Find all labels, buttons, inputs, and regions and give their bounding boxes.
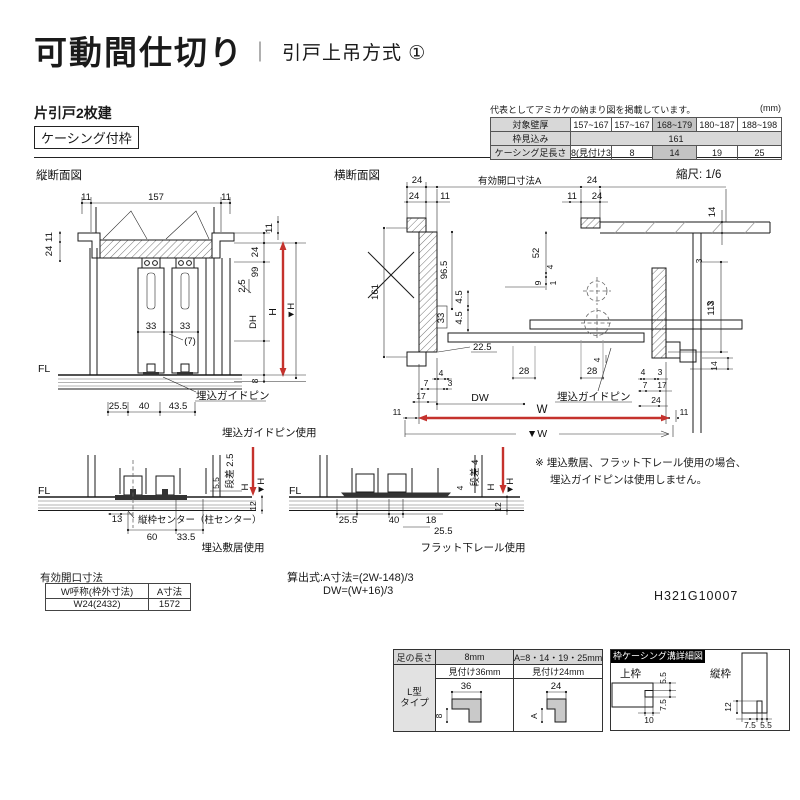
opening-dimension-table: W呼称(枠外寸法) A寸法 W24(2432) 1572 xyxy=(45,583,191,611)
dim-label: 4 xyxy=(439,368,444,378)
dim-label: 33 xyxy=(146,321,157,332)
row-header: 対象壁厚 xyxy=(491,118,571,132)
casing-leg-table: 足の長さ 8mm A=8・14・19・25mm L型タイプ 見付け36mm 見付… xyxy=(393,649,603,732)
table-row: L型タイプ 見付け36mm 見付け24mm xyxy=(394,665,603,679)
dim-label: 24 xyxy=(587,175,598,186)
dim-label: 3 xyxy=(694,258,704,263)
dim-label: 段差 4 xyxy=(469,460,481,487)
note-line: 埋込ガイドピンは使用しません。 xyxy=(535,472,746,489)
dim-label: 4 xyxy=(455,485,465,490)
cell: 180~187 xyxy=(697,118,738,132)
vertical-section-title: 縦断面図 xyxy=(36,168,82,182)
cell: 8 xyxy=(612,146,653,160)
cell: 157~167 xyxy=(612,118,653,132)
rail-detail-drawing: FL 段差 4 4 H ▼H 12 25.5 40 18 25.5 フラット下レ… xyxy=(289,447,526,554)
dim-label: 4.5 xyxy=(454,290,465,303)
dim-label: W xyxy=(537,404,548,416)
dim-label: 13 xyxy=(112,514,123,525)
dim-label: 11 xyxy=(81,192,91,203)
dim-label: DW xyxy=(471,392,489,404)
dim-label: 4 xyxy=(545,264,555,269)
sill-detail-drawing: FL 段差 2.5 5.5 H ▼H 12 13 縦枠センター（柱センター） 6… xyxy=(38,454,267,554)
unit-label: (mm) xyxy=(760,103,781,116)
page-title: 可動間仕切り xyxy=(34,26,244,74)
dim-label: ▼H xyxy=(505,478,516,494)
dim-label: 28 xyxy=(587,366,598,377)
dim-label: 11 xyxy=(440,191,450,202)
table-row: W呼称(枠外寸法) A寸法 xyxy=(46,584,191,599)
casing-leg-section: 足の長さ 8mm A=8・14・19・25mm L型タイプ 見付け36mm 見付… xyxy=(393,649,603,732)
dim-label: 11 xyxy=(393,407,402,417)
cell: W24(2432) xyxy=(46,599,149,611)
guide-pin-label: 埋込ガイドピン xyxy=(557,391,631,403)
dim-label: 9 xyxy=(533,280,543,285)
usage-note: ※ 埋込敷居、フラット下レール使用の場合、 埋込ガイドピンは使用しません。 xyxy=(535,455,746,489)
column-header: A=8・14・19・25mm xyxy=(514,650,603,665)
opening-dim-label: 有効開口寸法A xyxy=(478,175,542,187)
dim-label: 99 xyxy=(250,267,261,278)
dim-label: 4.5 xyxy=(454,311,465,324)
dim-label: 5.5 xyxy=(211,477,221,489)
spec-note: 代表としてアミカケの納まり図を掲載しています。 xyxy=(490,103,695,116)
dim-label: 7 xyxy=(643,380,648,390)
dim-label: 43.5 xyxy=(169,401,188,412)
dim-label: H xyxy=(267,308,279,316)
dim-label: 96.5 xyxy=(439,261,450,280)
dim-label: 3 xyxy=(658,367,663,377)
opening-dimension-section: W呼称(枠外寸法) A寸法 W24(2432) 1572 xyxy=(45,583,191,611)
dim-label: 24 xyxy=(592,191,603,202)
product-type-label: 片引戸2枚建 xyxy=(34,103,112,123)
dim-label: 4 xyxy=(641,367,646,377)
rail-detail-caption: フラット下レール使用 xyxy=(421,541,526,554)
dim-label: 1 xyxy=(548,280,558,285)
dim-label: 24 xyxy=(44,246,55,257)
calculation-formula: 算出式:A寸法=(2W-148)/3 DW=(W+16)/3 xyxy=(287,572,414,598)
dim-label: 11 xyxy=(567,191,577,202)
wall-spec-table: 対象壁厚 157~167 157~167 168~179 180~187 188… xyxy=(490,117,782,160)
floor-level-label: FL xyxy=(38,363,50,375)
table-row: ケーシング足長さ 8(見付け36) 8 14 19 25 xyxy=(491,146,782,160)
cell: 25 xyxy=(738,146,782,160)
cell: 見付け36mm xyxy=(436,665,514,679)
cell-highlighted: 14 xyxy=(653,146,697,160)
horizontal-section-title: 横断面図 xyxy=(334,168,380,182)
column-header: A寸法 xyxy=(149,584,191,599)
dim-label: DH xyxy=(248,315,259,329)
dim-label: ▼H xyxy=(256,478,267,494)
dim-label: 3 xyxy=(448,378,453,388)
column-header: 8mm xyxy=(436,650,514,665)
cell: 161 xyxy=(571,132,782,146)
row-header: L型タイプ xyxy=(394,665,436,732)
dim-label: 52 xyxy=(531,248,542,259)
cell: 1572 xyxy=(149,599,191,611)
row-header: ケーシング足長さ xyxy=(491,146,571,160)
cell: 8(見付け36) xyxy=(571,146,612,160)
vertical-section-caption: 埋込ガイドピン使用 xyxy=(222,426,317,439)
frame-type-badge: ケーシング付枠 xyxy=(34,126,139,149)
cell: 188~198 xyxy=(738,118,782,132)
note-line: ※ 埋込敷居、フラット下レール使用の場合、 xyxy=(535,455,746,472)
groove-panel-title: 枠ケーシング溝詳細図 xyxy=(611,650,705,663)
dim-label: 段差 2.5 xyxy=(224,454,236,489)
dim-label: 161 xyxy=(370,284,381,300)
dim-label: 33 xyxy=(436,313,447,324)
groove-detail-panel: 枠ケーシング溝詳細図 xyxy=(610,649,790,731)
dim-label: 17 xyxy=(657,380,667,390)
floor-level-label: FL xyxy=(289,485,301,497)
dim-label: 60 xyxy=(147,532,158,543)
column-header: W呼称(枠外寸法) xyxy=(46,584,149,599)
spec-sheet-page: 縦断面図 11 157 11 11 24 33 33 (7) FL 埋込ガイドピ… xyxy=(0,0,800,800)
profile-diagram-cell xyxy=(436,679,514,732)
row-header: 枠見込み xyxy=(491,132,571,146)
horizontal-section-drawing: 横断面図 縮尺: 1/6 24 有効開口寸法A 24 24 11 11 24 1… xyxy=(334,167,770,440)
dim-label: (7) xyxy=(184,336,196,347)
wall-spec-section: 代表としてアミカケの納まり図を掲載しています。 (mm) 対象壁厚 157~16… xyxy=(490,103,781,160)
dim-label: 25.5 xyxy=(434,526,453,537)
dim-label: 24 xyxy=(412,175,423,186)
cell: 19 xyxy=(697,146,738,160)
cell-highlighted: 168~179 xyxy=(653,118,697,132)
dim-label: 24 xyxy=(250,247,261,258)
profile-diagram-cell xyxy=(514,679,603,732)
dim-label: 18 xyxy=(426,515,437,526)
scale-label: 縮尺: 1/6 xyxy=(676,167,721,181)
title-separator: ｜ xyxy=(250,36,270,65)
dim-label: 40 xyxy=(139,401,150,412)
dim-label: 22.5 xyxy=(473,342,492,353)
dim-label: 17 xyxy=(416,391,426,401)
cell: 見付け24mm xyxy=(514,665,603,679)
dim-label: 7 xyxy=(424,378,429,388)
dim-label: 11 xyxy=(221,192,231,203)
floor-level-label: FL xyxy=(38,485,50,497)
dim-label: 12 xyxy=(248,501,258,511)
table-row: W24(2432) 1572 xyxy=(46,599,191,611)
dim-label: 11 xyxy=(44,232,55,242)
dim-label: ▼W xyxy=(527,428,547,440)
table-row: 枠見込み 161 xyxy=(491,132,782,146)
dim-label: 14 xyxy=(709,361,719,371)
dim-label: H xyxy=(486,483,497,490)
dim-label: 33 xyxy=(180,321,191,332)
vertical-section-drawing: 縦断面図 11 157 11 11 24 33 33 (7) FL 埋込ガイドピ… xyxy=(36,168,317,496)
dim-label: 24 xyxy=(409,191,420,202)
dim-label: 25.5 xyxy=(109,401,128,412)
method-title: 引戸上吊方式 ① xyxy=(282,38,426,65)
dim-label: 8 xyxy=(250,378,260,383)
dim-label: 12 xyxy=(493,502,503,512)
center-label: 縦枠センター（柱センター） xyxy=(138,514,262,526)
dim-label: 24 xyxy=(651,395,661,405)
dim-label: 4 xyxy=(592,357,602,362)
formula-line: DW=(W+16)/3 xyxy=(287,585,414,598)
formula-line: 算出式:A寸法=(2W-148)/3 xyxy=(287,572,414,585)
dim-label: ▼H xyxy=(286,303,297,319)
dim-label: 157 xyxy=(148,192,164,203)
column-header: 足の長さ xyxy=(394,650,436,665)
document-number: H321G10007 xyxy=(654,589,738,603)
dim-label: 11 xyxy=(264,223,275,233)
table-row: 足の長さ 8mm A=8・14・19・25mm xyxy=(394,650,603,665)
dim-label: 28 xyxy=(519,366,530,377)
sill-detail-caption: 埋込敷居使用 xyxy=(202,541,265,554)
dim-label: 40 xyxy=(389,515,400,526)
dim-label: 3 xyxy=(705,301,715,306)
dim-label: 11 xyxy=(680,407,689,417)
dim-label: 14 xyxy=(707,207,718,218)
dim-label: 33.5 xyxy=(177,532,196,543)
dim-label: 25.5 xyxy=(339,515,358,526)
guide-pin-label: 埋込ガイドピン xyxy=(196,390,270,402)
table-row: 対象壁厚 157~167 157~167 168~179 180~187 188… xyxy=(491,118,782,132)
dim-label: H xyxy=(240,483,251,490)
cell: 157~167 xyxy=(571,118,612,132)
